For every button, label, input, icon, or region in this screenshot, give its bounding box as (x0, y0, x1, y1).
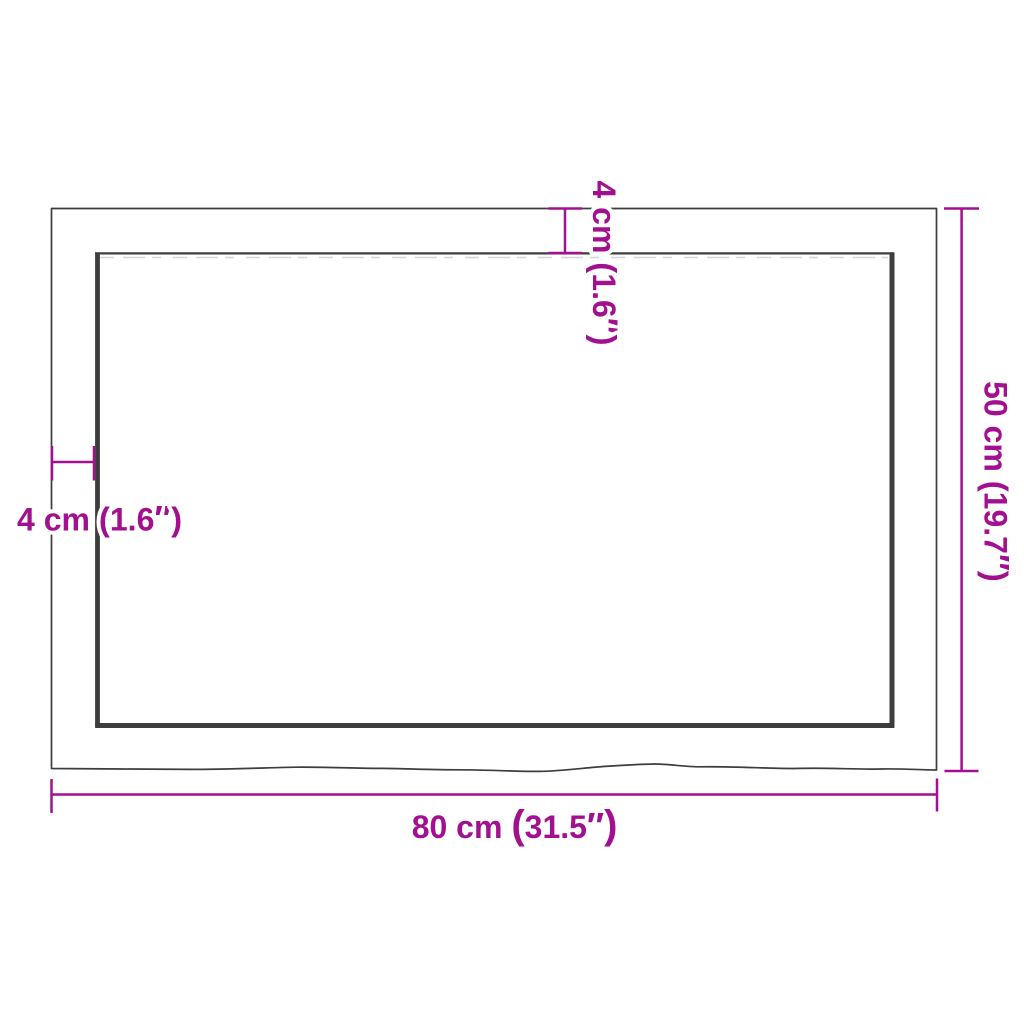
svg-text:50 cm (19.7″): 50 cm (19.7″) (977, 381, 1016, 582)
svg-text:4 cm (1.6″): 4 cm (1.6″) (585, 180, 624, 345)
svg-text:80 cm (31.5″): 80 cm (31.5″) (412, 803, 618, 847)
svg-text:4 cm (1.6″): 4 cm (1.6″) (17, 499, 182, 538)
